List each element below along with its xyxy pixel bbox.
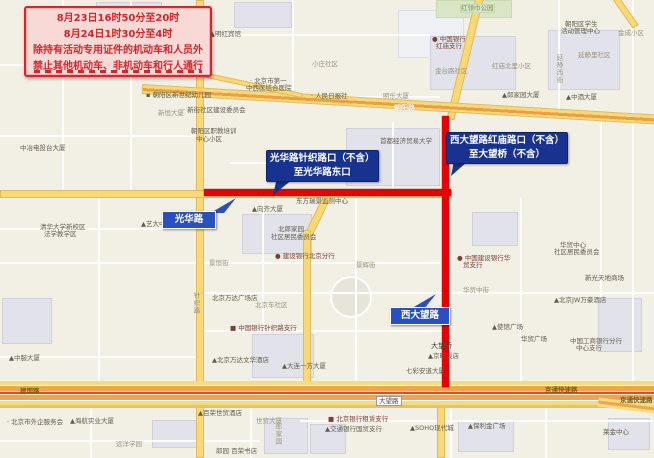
map-label: 社区居民委员会 <box>271 234 317 241</box>
map-label: ▲百荣世贸酒店 <box>198 410 242 417</box>
minor-road <box>450 408 452 458</box>
map-label: 景辉街 <box>356 262 376 269</box>
map-label: 郎家园 <box>274 423 281 446</box>
callout-guanghua-line2: 至光华路东口 <box>270 166 375 180</box>
map-label: ▲海航实业大厦 <box>70 418 114 425</box>
map-label: ▲郎家园大厦 <box>502 92 540 99</box>
map-label: 中心支行 <box>576 345 602 352</box>
minor-road <box>262 198 264 332</box>
map-label: 东方瑞景监测中心 <box>296 198 348 205</box>
notice-line2: 8月24日1时30分至4时 <box>26 27 210 43</box>
map-label: ▲SOHO现代城 <box>410 425 454 432</box>
minor-road <box>0 135 196 137</box>
map-label: 首都经济贸易大学 <box>380 138 432 145</box>
map-label: 小庄社区 <box>312 61 338 68</box>
minor-road <box>632 0 634 382</box>
map-label: 活动管理中心 <box>561 28 600 35</box>
map-label: 社区居民委员会 <box>554 249 600 256</box>
map-label: 北郎家园 <box>278 226 304 233</box>
map-label: · 北京市外企服务会 <box>7 419 63 426</box>
map-label: ▲大连一方大厦 <box>282 363 326 370</box>
notice-line3: 除持有活动专用证件的机动车和人员外 <box>26 43 210 59</box>
map-label: ▲明红宾馆 <box>210 31 241 38</box>
map-label: 京通快速路 <box>545 387 578 394</box>
road-tag-xidawang: 西大望路 <box>390 307 450 325</box>
map-label: ▲中服大厦 <box>9 355 40 362</box>
map-label: 新光天地商场 <box>585 275 624 282</box>
map-label: ▪ 朝阳区新世纪幼儿园 <box>146 92 211 99</box>
notice-line1: 8月23日16时50分至20时 <box>26 11 210 27</box>
map-label: 京通快速路 <box>620 397 653 404</box>
map-label: 建国路 <box>20 388 40 395</box>
minor-road <box>600 122 602 297</box>
map-label: ▲北京万达文华酒店 <box>212 357 269 364</box>
map-label: 莱金中心 <box>603 429 629 436</box>
map-label: 朝阳路 <box>394 105 415 112</box>
notice-line4: 禁止其他机动车、非机动车和行人通行 <box>26 59 210 75</box>
restricted-segment-guanghualu <box>204 189 451 196</box>
restriction-notice: 8月23日16时50分至20时 8月24日1时30分至4时 除持有活动专用证件的… <box>24 6 212 77</box>
map-label: 七彩安道大厦 <box>406 368 445 375</box>
map-label: 金成小区 <box>618 30 644 37</box>
minor-road <box>292 0 294 90</box>
map-label: 明乐大厦 <box>383 93 409 100</box>
map-label: 世贸大厦 <box>256 418 282 425</box>
map-label: 新恒大厦 <box>158 110 184 117</box>
map-label: 贸支行 <box>463 262 483 269</box>
minor-road <box>90 408 92 458</box>
map-label: ▲向齐大厦 <box>252 206 283 213</box>
callout-xidawang-line2: 至大望桥（不含） <box>450 148 564 162</box>
building-block <box>152 420 202 448</box>
callout-guanghua-line1: 光华路针织路口（不含） <box>270 152 375 166</box>
map-label: 法学教学区 <box>44 231 77 238</box>
map-label: 大望桥 <box>431 343 452 350</box>
map-label: ▲中酒大厦 <box>566 94 597 101</box>
minor-road <box>204 292 654 294</box>
map-label: · 新街社区建设委员会 <box>183 107 246 114</box>
map-label: 中西医结合医院 <box>246 85 292 92</box>
map-label: 延静西街 <box>555 54 562 84</box>
map-label: 金台路社区 <box>435 68 468 75</box>
map-label: ▲交通银行国贸支行 <box>325 426 382 433</box>
minor-road <box>355 198 357 383</box>
map-label: 中冶电投台大厦 <box>20 145 66 152</box>
road-corner-diagonal <box>612 0 638 29</box>
road-tag-guanghua: 光华路 <box>162 211 216 229</box>
map-label: 红领巾公园 <box>460 4 495 13</box>
callout-xidawang: 西大望路红庙路口（不含） 至大望桥（不含） <box>446 132 568 164</box>
map-label: ■ 中国银行针织路支行 <box>230 325 297 332</box>
callout-guanghua: 光华路针织路口（不含） 至光华路东口 <box>266 150 379 182</box>
map-label: ▲京旺饭店 <box>428 353 459 360</box>
map-label: 北京万达广场店 <box>212 295 258 302</box>
map-label: 延静里社区 <box>578 52 611 59</box>
map-label: 华贸广场 <box>521 336 547 343</box>
callout-xidawang-line1: 西大望路红庙路口（不含） <box>450 134 564 148</box>
map-label: ● 建设银行北京分行 <box>275 253 335 260</box>
map-label: 红庙支行 <box>436 43 462 50</box>
map-label: 北京车社区 <box>255 302 288 309</box>
map-label: · 人民日报社 <box>311 93 348 100</box>
building-block <box>234 2 292 28</box>
map-label: 中心小区 <box>196 136 222 143</box>
park-circle <box>330 276 372 318</box>
map-label: ▲使馆广场 <box>492 324 523 331</box>
map-label: ■ 北京银行租赁支行 <box>328 416 388 423</box>
map-label: 景恒街 <box>209 260 229 267</box>
minor-road <box>520 198 522 383</box>
map-label: ▲北京JW万豪酒店 <box>554 297 606 304</box>
road-sign-dawanglu: 大望路 <box>376 396 402 406</box>
map-label: 红庙北里小区 <box>492 63 531 70</box>
minor-road <box>392 122 394 194</box>
minor-road <box>545 408 547 458</box>
traffic-restriction-map: ▪ 朝阳区新世纪幼儿园新恒大厦· 新街社区建设委员会朝阳区职教培训中心小区▲明红… <box>0 0 654 458</box>
map-label: ▲保利金广场 <box>468 423 506 430</box>
map-label: 郎园 百荣书店 <box>216 448 257 455</box>
building-block <box>472 212 518 246</box>
map-label: 朝阳区职教培训 <box>191 128 237 135</box>
map-label: 华贸中街 <box>463 287 489 294</box>
map-label: 针织路 <box>192 292 199 315</box>
map-label: 远洋学园 <box>116 441 142 448</box>
building-block <box>2 298 52 344</box>
